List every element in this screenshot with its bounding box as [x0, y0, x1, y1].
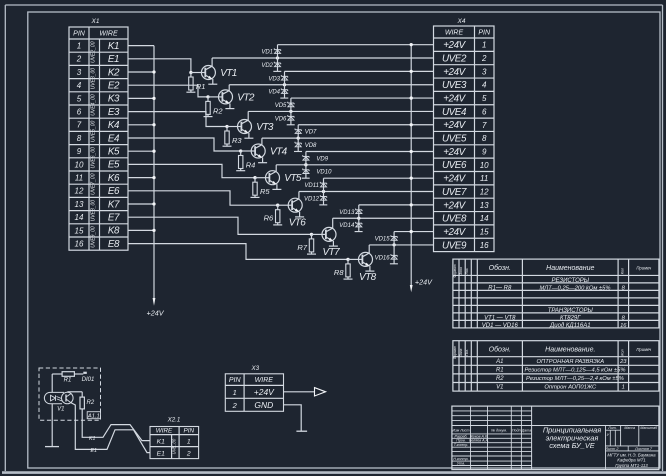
- svg-text:PIN: PIN: [478, 30, 491, 37]
- svg-text:6: 6: [482, 107, 487, 116]
- svg-text:E2: E2: [108, 81, 120, 92]
- svg-text:WIRE: WIRE: [99, 31, 118, 38]
- svg-text:Утв.: Утв.: [457, 462, 465, 466]
- svg-text:16: 16: [480, 241, 489, 250]
- svg-text:VD1 — VD16: VD1 — VD16: [482, 323, 519, 329]
- svg-text:+24V: +24V: [443, 174, 466, 185]
- svg-text:Примеч: Примеч: [636, 265, 652, 270]
- svg-text:UVE7: UVE7: [442, 187, 467, 198]
- svg-text:R2: R2: [87, 400, 95, 406]
- svg-text:UVE8_00: UVE8_00: [91, 200, 97, 222]
- svg-text:+24V: +24V: [415, 278, 433, 287]
- svg-text:Лит.: Лит.: [607, 426, 616, 430]
- svg-text:K2: K2: [108, 67, 120, 78]
- svg-text:E7: E7: [108, 213, 120, 224]
- svg-text:UVE2: UVE2: [442, 53, 467, 64]
- svg-text:9: 9: [482, 147, 487, 156]
- svg-text:Жуков А.К.: Жуков А.К.: [469, 434, 488, 438]
- svg-text:3: 3: [482, 67, 487, 76]
- svg-text:VT1 — VT8: VT1 — VT8: [484, 315, 516, 321]
- svg-text:+24V: +24V: [443, 120, 466, 131]
- svg-text:V1: V1: [496, 385, 503, 391]
- svg-text:1: 1: [77, 42, 81, 51]
- svg-text:K4: K4: [108, 120, 120, 131]
- svg-text:UVE7_00: UVE7_00: [91, 173, 97, 195]
- svg-text:E1: E1: [157, 451, 166, 458]
- svg-text:А1: А1: [495, 359, 503, 365]
- svg-text:Подп: Подп: [512, 429, 521, 433]
- svg-text:VD9: VD9: [316, 156, 328, 162]
- svg-text:R1: R1: [496, 368, 504, 374]
- svg-text:Формат: Формат: [453, 264, 457, 278]
- svg-text:WIRE: WIRE: [445, 30, 464, 37]
- svg-text:VD14: VD14: [339, 223, 355, 229]
- svg-text:R8: R8: [334, 268, 344, 277]
- svg-text:КТ829Г: КТ829Г: [560, 315, 581, 321]
- svg-text:UVE6_00: UVE6_00: [91, 147, 97, 169]
- svg-text:X4: X4: [457, 18, 466, 25]
- svg-text:K3: K3: [108, 94, 120, 105]
- svg-text:UVE4: UVE4: [442, 107, 467, 118]
- svg-text:K8: K8: [108, 226, 120, 237]
- svg-text:Обозн.: Обозн.: [489, 264, 511, 272]
- svg-text:VT5: VT5: [284, 173, 302, 184]
- svg-text:K7: K7: [108, 199, 120, 210]
- svg-text:K1: K1: [108, 41, 119, 52]
- svg-text:UVE5: UVE5: [442, 134, 467, 145]
- svg-text:UVE_00: UVE_00: [171, 438, 176, 454]
- svg-text:Т.контр.: Т.контр.: [454, 443, 469, 447]
- svg-text:16: 16: [75, 240, 84, 249]
- svg-text:14: 14: [480, 214, 489, 223]
- svg-text:R1: R1: [196, 82, 206, 91]
- svg-text:PIN: PIN: [184, 428, 195, 435]
- svg-text:12: 12: [480, 188, 489, 197]
- svg-text:+24V: +24V: [147, 309, 165, 318]
- svg-text:PIN: PIN: [229, 377, 242, 384]
- svg-text:7: 7: [77, 121, 82, 130]
- svg-text:R2: R2: [213, 106, 223, 115]
- svg-text:2: 2: [76, 55, 82, 64]
- svg-text:+24V: +24V: [443, 67, 466, 78]
- svg-text:Наименование.: Наименование.: [545, 346, 595, 353]
- svg-text:1: 1: [622, 385, 625, 391]
- svg-text:11: 11: [75, 174, 83, 183]
- svg-text:12: 12: [75, 187, 84, 196]
- svg-text:Диод КД116А1: Диод КД116А1: [549, 323, 591, 329]
- svg-text:Изм Лист: Изм Лист: [453, 429, 470, 433]
- svg-text:UVE5_00: UVE5_00: [91, 120, 97, 142]
- svg-text:3: 3: [77, 68, 82, 77]
- svg-text:схема БУ_VE: схема БУ_VE: [549, 441, 595, 450]
- svg-text:UVE3: UVE3: [442, 80, 467, 91]
- svg-text:МЛТ—0,25—200 kОм ±5%: МЛТ—0,25—200 kОм ±5%: [539, 285, 610, 291]
- svg-text:Примеч: Примеч: [636, 347, 652, 352]
- svg-text:4: 4: [77, 81, 82, 90]
- svg-text:VD15: VD15: [375, 236, 391, 242]
- svg-text:Кол: Кол: [620, 267, 624, 274]
- svg-text:UVE3_00: UVE3_00: [91, 68, 97, 90]
- svg-text:+24V: +24V: [443, 147, 466, 158]
- svg-text:VD11: VD11: [304, 183, 319, 189]
- svg-text:Зона: Зона: [459, 349, 463, 357]
- svg-text:№ докум.: № докум.: [491, 429, 507, 433]
- svg-text:Резистор МЛТ—0,25—2,4 кОм ±5: Резистор МЛТ—0,25—2,4 кОм ±5%: [526, 376, 624, 382]
- svg-text:PIN: PIN: [73, 31, 86, 38]
- svg-text:X2.1: X2.1: [167, 417, 181, 424]
- svg-text:10: 10: [75, 160, 84, 169]
- svg-text:E5: E5: [108, 160, 120, 171]
- svg-text:VD4: VD4: [268, 90, 280, 96]
- svg-text:Наименование: Наименование: [546, 265, 594, 272]
- svg-text:+24V: +24V: [443, 40, 466, 51]
- svg-text:VD7: VD7: [305, 130, 317, 136]
- svg-text:Лист 2: Лист 2: [605, 447, 620, 451]
- svg-text:E6: E6: [108, 186, 120, 197]
- svg-text:1: 1: [233, 388, 237, 397]
- svg-text:X1: X1: [91, 18, 100, 25]
- svg-text:Зона: Зона: [459, 267, 463, 275]
- svg-text:UVE9: UVE9: [442, 240, 467, 251]
- svg-text:+24V: +24V: [443, 93, 466, 104]
- svg-text:Оптрон АОП01ЖС: Оптрон АОП01ЖС: [544, 385, 597, 391]
- svg-text:1: 1: [482, 41, 486, 50]
- svg-text:VT2: VT2: [237, 92, 255, 103]
- svg-text:VD2: VD2: [261, 63, 273, 69]
- svg-text:Разраб.: Разраб.: [454, 434, 467, 438]
- svg-text:VT3: VT3: [256, 122, 274, 133]
- svg-text:Листов 7: Листов 7: [634, 447, 653, 451]
- svg-text:E4: E4: [108, 133, 120, 144]
- svg-text:+24V: +24V: [443, 200, 466, 211]
- svg-text:X3: X3: [251, 365, 260, 372]
- svg-text:R5: R5: [260, 187, 270, 196]
- svg-text:16: 16: [620, 323, 627, 329]
- svg-text:5: 5: [77, 94, 82, 103]
- svg-text:VT4: VT4: [270, 146, 288, 157]
- svg-text:V1: V1: [57, 407, 64, 413]
- svg-text:E8: E8: [108, 239, 120, 250]
- svg-text:VD16: VD16: [375, 255, 391, 261]
- svg-text:7: 7: [482, 121, 487, 130]
- svg-text:UVE6: UVE6: [442, 160, 467, 171]
- svg-text:13: 13: [75, 200, 84, 209]
- svg-text:15: 15: [480, 228, 489, 237]
- svg-text:R1: R1: [64, 377, 72, 383]
- svg-text:Масса: Масса: [624, 426, 635, 430]
- svg-text:UVE4_00: UVE4_00: [91, 94, 97, 116]
- svg-text:Пров.: Пров.: [456, 439, 465, 443]
- svg-text:14: 14: [75, 213, 84, 222]
- svg-text:Масштаб: Масштаб: [640, 426, 658, 430]
- svg-text:VT7: VT7: [323, 247, 341, 258]
- svg-text:GND: GND: [254, 400, 273, 410]
- svg-text:Резистор МЛТ—0,125—4,5 кОм ±: Резистор МЛТ—0,125—4,5 кОм ±5%: [524, 368, 625, 374]
- svg-text:2: 2: [481, 54, 487, 63]
- svg-text:13: 13: [480, 201, 489, 210]
- svg-text:8: 8: [77, 134, 82, 143]
- svg-text:4: 4: [482, 81, 487, 90]
- svg-text:Поз.: Поз.: [465, 268, 469, 275]
- svg-text:1: 1: [187, 439, 191, 446]
- svg-text:Беляев А.А.: Беляев А.А.: [469, 439, 489, 443]
- svg-text:UVE9_00: UVE9_00: [91, 226, 97, 248]
- svg-text:+24V: +24V: [254, 387, 275, 397]
- svg-text:DI01: DI01: [82, 377, 95, 383]
- svg-text:VD8: VD8: [305, 143, 317, 149]
- svg-text:Обозн.: Обозн.: [489, 345, 511, 353]
- svg-text:VD6: VD6: [275, 116, 287, 122]
- svg-text:Группа МТ1-113: Группа МТ1-113: [615, 463, 648, 468]
- svg-text:VD10: VD10: [316, 170, 332, 176]
- svg-text:ОПТРОННАЯ РАЗВЯЗКА: ОПТРОННАЯ РАЗВЯЗКА: [537, 359, 605, 365]
- svg-text:VD5: VD5: [275, 103, 287, 109]
- svg-text:Дата: Дата: [521, 429, 531, 433]
- svg-text:8: 8: [482, 134, 487, 143]
- svg-text:Кол: Кол: [620, 348, 624, 355]
- svg-text:VD12: VD12: [304, 196, 320, 202]
- svg-text:VT1: VT1: [220, 68, 237, 79]
- svg-text:K1: K1: [89, 436, 95, 442]
- svg-text:WIRE: WIRE: [156, 428, 173, 435]
- svg-text:Н.контр.: Н.контр.: [453, 457, 468, 461]
- svg-text:R7: R7: [297, 243, 307, 252]
- svg-text:R6: R6: [264, 214, 274, 223]
- svg-text:VD3: VD3: [268, 76, 280, 82]
- svg-text:K1: K1: [157, 439, 166, 446]
- svg-text:Поз.: Поз.: [465, 349, 469, 356]
- svg-text:9: 9: [77, 147, 82, 156]
- svg-text:+24V: +24V: [443, 227, 466, 238]
- svg-text:5: 5: [482, 94, 487, 103]
- svg-text:K6: K6: [108, 173, 120, 184]
- svg-text:E1: E1: [91, 448, 97, 454]
- svg-text:K5: K5: [108, 147, 120, 158]
- svg-text:E1: E1: [108, 54, 119, 65]
- svg-text:R3: R3: [232, 136, 242, 145]
- svg-text:23: 23: [619, 359, 627, 365]
- svg-text:R1— R8: R1— R8: [488, 285, 512, 291]
- svg-text:2: 2: [232, 401, 238, 410]
- svg-text:VT8: VT8: [359, 272, 377, 283]
- svg-text:VD1: VD1: [261, 50, 273, 56]
- svg-text:VD13: VD13: [339, 210, 355, 216]
- svg-text:E3: E3: [108, 107, 120, 118]
- svg-text:6: 6: [77, 108, 82, 117]
- svg-text:15: 15: [75, 226, 84, 235]
- svg-text:10: 10: [480, 161, 489, 170]
- svg-text:R2: R2: [496, 376, 504, 382]
- svg-text:WIRE: WIRE: [255, 377, 274, 384]
- svg-text:UVE8: UVE8: [442, 214, 467, 225]
- svg-text:11: 11: [480, 174, 488, 183]
- svg-text:Формат: Формат: [453, 346, 457, 360]
- svg-text:UVE2_00: UVE2_00: [91, 41, 97, 63]
- svg-text:2: 2: [186, 451, 191, 458]
- svg-text:A1.1: A1.1: [87, 413, 100, 419]
- svg-text:VT6: VT6: [289, 218, 307, 229]
- svg-text:R4: R4: [246, 161, 256, 170]
